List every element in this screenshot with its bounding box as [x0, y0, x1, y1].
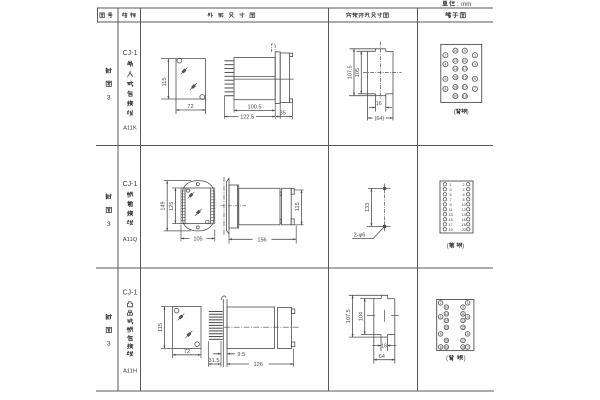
svg-text:156: 156: [257, 237, 266, 243]
svg-text:15: 15: [461, 326, 465, 330]
svg-text:5: 5: [450, 193, 452, 197]
svg-text:9: 9: [464, 49, 466, 53]
svg-text:19: 19: [448, 228, 452, 232]
svg-text:107.5: 107.5: [346, 309, 352, 323]
svg-text:16: 16: [445, 326, 449, 330]
svg-text:CJ-1: CJ-1: [123, 181, 138, 188]
svg-text:3: 3: [450, 188, 452, 192]
svg-text:133: 133: [365, 203, 371, 212]
svg-text:6: 6: [440, 332, 442, 336]
svg-text:13: 13: [463, 67, 467, 71]
svg-text:18: 18: [454, 85, 458, 89]
svg-text:mm: mm: [461, 1, 471, 8]
svg-text:2: 2: [440, 301, 442, 305]
svg-text:1: 1: [474, 54, 476, 58]
svg-text:7: 7: [450, 198, 452, 202]
svg-text:8: 8: [444, 87, 446, 91]
svg-text:17: 17: [461, 339, 465, 343]
svg-text:125: 125: [169, 202, 175, 211]
svg-text:5: 5: [467, 332, 469, 336]
svg-text:19: 19: [461, 345, 465, 349]
svg-text:122.5: 122.5: [240, 114, 254, 120]
svg-text:A11H: A11H: [123, 368, 137, 374]
svg-text:2-φ6: 2-φ6: [354, 233, 366, 239]
svg-text:14: 14: [454, 67, 458, 71]
svg-text:12: 12: [454, 59, 458, 63]
svg-text:1: 1: [467, 301, 469, 305]
svg-text:7: 7: [474, 87, 476, 91]
svg-text:100.5: 100.5: [248, 104, 262, 110]
svg-text:15: 15: [463, 76, 467, 80]
svg-text:31.5: 31.5: [209, 358, 220, 364]
svg-text:6: 6: [463, 193, 465, 197]
svg-text:17: 17: [448, 223, 452, 227]
svg-text:8: 8: [463, 198, 465, 202]
svg-text:13: 13: [461, 319, 465, 323]
svg-text::: :: [457, 1, 459, 8]
svg-text:11: 11: [461, 312, 465, 316]
svg-text:11: 11: [463, 59, 467, 63]
svg-text:20: 20: [461, 228, 465, 232]
svg-text:115: 115: [162, 78, 168, 87]
svg-text:126: 126: [254, 362, 263, 368]
svg-text:10: 10: [445, 305, 449, 309]
svg-text:6: 6: [444, 77, 446, 81]
svg-text:105: 105: [193, 236, 202, 242]
svg-text:8: 8: [440, 345, 442, 349]
svg-text:4: 4: [463, 188, 465, 192]
svg-text:5: 5: [474, 77, 476, 81]
svg-text:72: 72: [184, 349, 190, 355]
svg-text:11: 11: [449, 208, 453, 212]
svg-text:4: 4: [444, 63, 446, 67]
svg-text:3: 3: [107, 94, 111, 101]
svg-text:16: 16: [376, 101, 382, 107]
svg-text:15: 15: [448, 218, 452, 222]
svg-text:4: 4: [440, 315, 442, 319]
svg-text:35: 35: [280, 110, 286, 116]
svg-text:20: 20: [454, 94, 458, 98]
svg-text:20: 20: [445, 345, 449, 349]
svg-text:10: 10: [461, 203, 465, 207]
svg-text:1: 1: [450, 183, 452, 187]
svg-text:(64): (64): [375, 116, 385, 122]
svg-text:12: 12: [461, 208, 465, 212]
svg-text:9.5: 9.5: [237, 352, 245, 358]
svg-text:115: 115: [158, 323, 164, 332]
svg-text:18: 18: [461, 223, 465, 227]
svg-text:3: 3: [474, 63, 476, 67]
svg-text:13: 13: [448, 213, 452, 217]
svg-text:149: 149: [161, 201, 167, 210]
svg-text:2: 2: [444, 54, 446, 58]
svg-text:105: 105: [355, 68, 361, 77]
svg-text:14: 14: [461, 213, 465, 217]
svg-text:): ): [462, 243, 464, 250]
svg-text:A11K: A11K: [123, 126, 137, 132]
svg-text:10: 10: [454, 49, 458, 53]
svg-text:A11Q: A11Q: [123, 237, 138, 243]
svg-text:3: 3: [107, 221, 111, 228]
svg-text:14: 14: [445, 319, 449, 323]
svg-text:18: 18: [445, 339, 449, 343]
svg-text:17: 17: [463, 85, 467, 89]
svg-text:9: 9: [462, 305, 464, 309]
svg-text:2: 2: [463, 183, 465, 187]
svg-text:16: 16: [454, 76, 458, 80]
svg-text:9: 9: [450, 203, 452, 207]
svg-text:64: 64: [379, 354, 385, 360]
svg-text:12: 12: [445, 312, 449, 316]
svg-text:16: 16: [381, 344, 387, 350]
svg-text:104: 104: [358, 312, 364, 321]
svg-text:3: 3: [467, 315, 469, 319]
svg-text:): ): [467, 109, 469, 116]
svg-text:107.5: 107.5: [347, 65, 353, 79]
svg-text:3: 3: [107, 341, 111, 348]
svg-text:16: 16: [461, 218, 465, 222]
svg-text:72: 72: [187, 104, 193, 110]
svg-text:CJ-1: CJ-1: [123, 290, 138, 297]
svg-text:19: 19: [463, 94, 467, 98]
svg-text:7: 7: [467, 345, 469, 349]
svg-text:CJ-1: CJ-1: [123, 50, 138, 57]
svg-text:115: 115: [295, 202, 301, 211]
svg-text:): ): [464, 355, 466, 362]
